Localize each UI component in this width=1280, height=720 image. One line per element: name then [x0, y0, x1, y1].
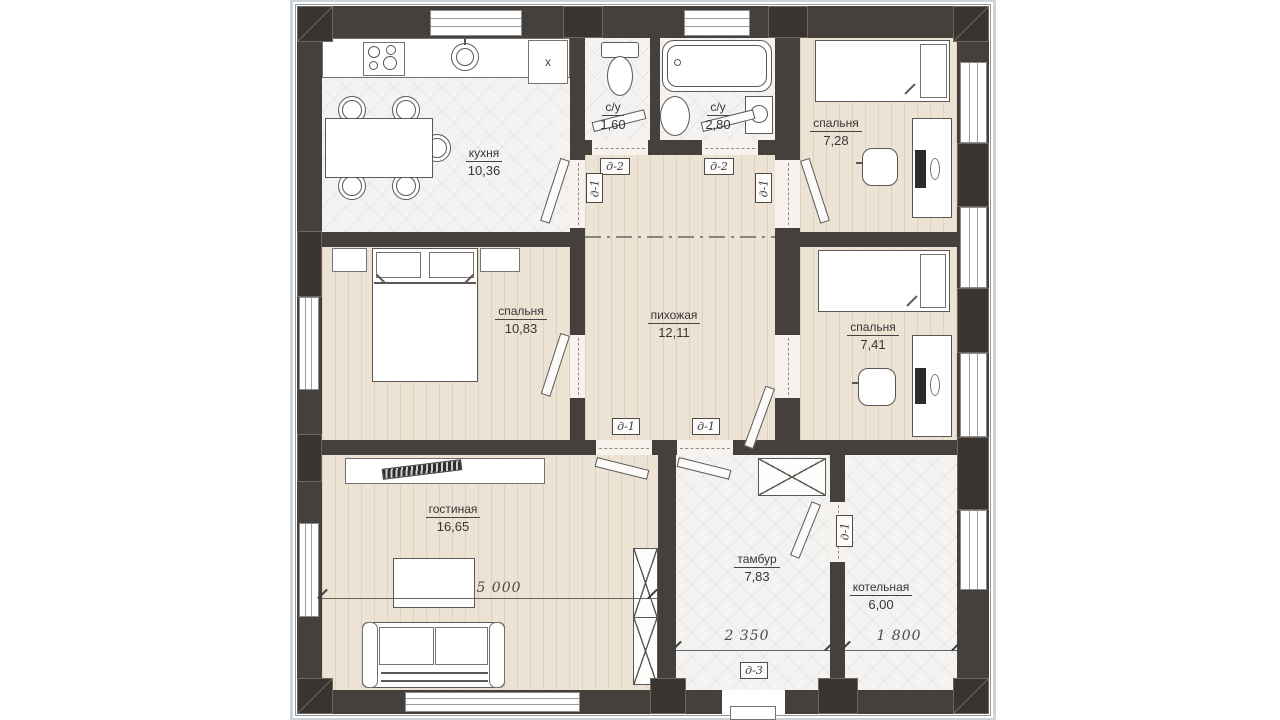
- door-tag-d1: д-1: [755, 173, 772, 203]
- room-area: 10,83: [482, 320, 560, 337]
- room-label-wc: с/у1,60: [593, 100, 633, 133]
- pilaster: [957, 437, 989, 510]
- bathroom-sink: [660, 96, 690, 136]
- door-opening-bedroom2: [570, 335, 585, 398]
- wall-under-bath: [758, 140, 800, 155]
- room-label-vestibule: тамбур7,83: [719, 552, 795, 585]
- sofa-seat-line: [381, 680, 488, 682]
- room-label-bedroom1: спальня7,28: [800, 116, 872, 149]
- room-area: 6,00: [843, 596, 919, 613]
- blanket-edge: [374, 282, 476, 284]
- wall-living-vestibule: [658, 455, 676, 690]
- pilaster-corner: [953, 6, 989, 42]
- room-label-hallway: пихожая12,11: [637, 308, 711, 341]
- sofa-armrest: [362, 622, 378, 688]
- office-chair-arm: [856, 162, 863, 164]
- room-area: 1,60: [593, 116, 633, 133]
- wall-wc-bath: [650, 38, 660, 140]
- toilet-bowl: [607, 56, 633, 96]
- room-name: котельная: [850, 580, 912, 596]
- room-name: с/у: [602, 100, 623, 116]
- door-tag-d2: д-2: [600, 158, 630, 175]
- pilaster-corner: [297, 6, 333, 42]
- wardrobe: [633, 617, 658, 685]
- door-tag-label: д-1: [588, 179, 601, 197]
- cabinet: [393, 558, 475, 608]
- window: [960, 510, 987, 590]
- door-tag-label: д-1: [697, 420, 715, 433]
- wall-bedroom2-hall: [570, 398, 585, 440]
- room-label-bath: с/у2,80: [698, 100, 738, 133]
- door-opening-wc: [592, 140, 648, 155]
- room-name: спальня: [847, 320, 899, 336]
- entrance-step: [730, 706, 776, 720]
- pilaster-corner: [297, 678, 333, 714]
- window: [299, 297, 319, 390]
- pillow: [920, 44, 947, 98]
- monitor: [915, 368, 926, 404]
- wall-under-wc: [570, 140, 592, 155]
- wardrobe: [633, 548, 658, 618]
- wall-bottom: [297, 690, 989, 714]
- door-tag-label: д-3: [745, 664, 763, 677]
- door-tag-label: д-2: [710, 160, 728, 173]
- room-area: 2,80: [698, 116, 738, 133]
- office-chair-arm: [852, 382, 859, 384]
- fridge: х: [528, 40, 568, 84]
- door-tag-label: д-2: [606, 160, 624, 173]
- kitchen-sink-basin: [456, 48, 474, 66]
- dimension-vestibule: 2 350: [717, 628, 777, 644]
- room-area: 7,28: [800, 132, 872, 149]
- dimension-line-boiler: [845, 650, 957, 651]
- room-area: 12,11: [637, 324, 711, 341]
- room-label-living: гостиная16,65: [415, 502, 491, 535]
- door-opening-kitchen: [570, 160, 585, 228]
- door-opening-bedroom3: [775, 335, 800, 398]
- dimension-living: 5 000: [475, 580, 523, 596]
- door-opening-bedroom1: [775, 160, 800, 228]
- bathtub-drain: [674, 59, 681, 66]
- door-tag-d1: д-1: [612, 418, 640, 435]
- stove-burner: [369, 61, 378, 70]
- fridge-label: х: [545, 55, 551, 69]
- screenshot: х: [0, 0, 1280, 720]
- door-tag-d3: д-3: [740, 662, 768, 679]
- door-tag-d1: д-1: [692, 418, 720, 435]
- room-name: спальня: [495, 304, 547, 320]
- pilaster: [957, 288, 989, 353]
- door-tag-d1: д-1: [586, 173, 603, 203]
- pilaster: [297, 231, 322, 297]
- door-tag-d2: д-2: [704, 158, 734, 175]
- door-tag-label: д-1: [838, 522, 851, 540]
- wall-hall-bedroom3: [775, 398, 800, 440]
- pilaster: [768, 6, 808, 38]
- wall-bedroom1-bedroom3: [775, 232, 957, 247]
- pilaster: [957, 143, 989, 207]
- dining-table: [325, 118, 433, 178]
- office-chair: [858, 368, 896, 406]
- wall-vestibule-boiler: [830, 455, 845, 502]
- room-hallway-floor: [585, 140, 775, 440]
- room-label-boiler: котельная6,00: [843, 580, 919, 613]
- window: [960, 62, 987, 143]
- room-boiler-floor: [845, 455, 957, 690]
- window: [684, 10, 750, 36]
- pillow: [429, 252, 474, 278]
- door-tag-label: д-1: [757, 179, 770, 197]
- wall-mid-bottom: [733, 440, 957, 455]
- bathtub-inner: [667, 45, 767, 87]
- room-name: пихожая: [648, 308, 701, 324]
- wall-mid-bottom: [297, 440, 596, 455]
- door-opening-living: [596, 440, 652, 455]
- room-area: 7,41: [837, 336, 909, 353]
- door-opening-vestibule: [677, 440, 733, 455]
- window: [960, 207, 987, 288]
- sofa-armrest: [489, 622, 505, 688]
- window: [960, 353, 987, 437]
- room-label-bedroom3: спальня7,41: [837, 320, 909, 353]
- sofa-seat-line: [381, 672, 488, 674]
- monitor-stand: [930, 158, 940, 180]
- room-area: 16,65: [415, 518, 491, 535]
- door-opening-bath: [702, 140, 758, 155]
- room-label-bedroom2: спальня10,83: [482, 304, 560, 337]
- stove-burner: [368, 46, 380, 58]
- nightstand: [332, 248, 367, 272]
- stove-burner: [383, 56, 397, 70]
- wall-mid-bottom: [652, 440, 677, 455]
- wall-under-bath: [648, 140, 702, 155]
- dimension-boiler: 1 800: [869, 628, 929, 644]
- room-area: 7,83: [719, 568, 795, 585]
- pilaster: [818, 678, 858, 714]
- window: [430, 10, 522, 36]
- room-name: спальня: [810, 116, 862, 132]
- window: [405, 692, 580, 712]
- wall-top: [297, 6, 989, 38]
- dimension-line-living: [322, 598, 658, 599]
- door-tag-d1: д-1: [836, 515, 853, 547]
- storage-cabinet: [758, 458, 826, 496]
- pillow: [376, 252, 421, 278]
- pilaster-corner: [953, 678, 989, 714]
- room-area: 10,36: [454, 162, 514, 179]
- pillow: [920, 254, 946, 308]
- window: [299, 523, 319, 617]
- room-name: гостиная: [426, 502, 481, 518]
- pilaster: [563, 6, 603, 38]
- sofa-cushion: [379, 627, 434, 665]
- dimension-line-vestibule: [676, 650, 830, 651]
- room-name: кухня: [466, 146, 503, 162]
- room-name: тамбур: [734, 552, 779, 568]
- wall-kitchen-bedroom2: [297, 232, 585, 247]
- monitor: [915, 150, 926, 188]
- nightstand: [480, 248, 520, 272]
- pilaster: [297, 434, 322, 482]
- door-tag-label: д-1: [617, 420, 635, 433]
- monitor-stand: [930, 374, 940, 396]
- room-label-kitchen: кухня10,36: [454, 146, 514, 179]
- zone-divider-line: [585, 236, 775, 238]
- room-name: с/у: [707, 100, 728, 116]
- office-chair: [862, 148, 898, 186]
- sofa-cushion: [435, 627, 488, 665]
- floor-plan: х: [297, 6, 989, 714]
- pilaster: [650, 678, 686, 714]
- stove-burner: [386, 45, 396, 55]
